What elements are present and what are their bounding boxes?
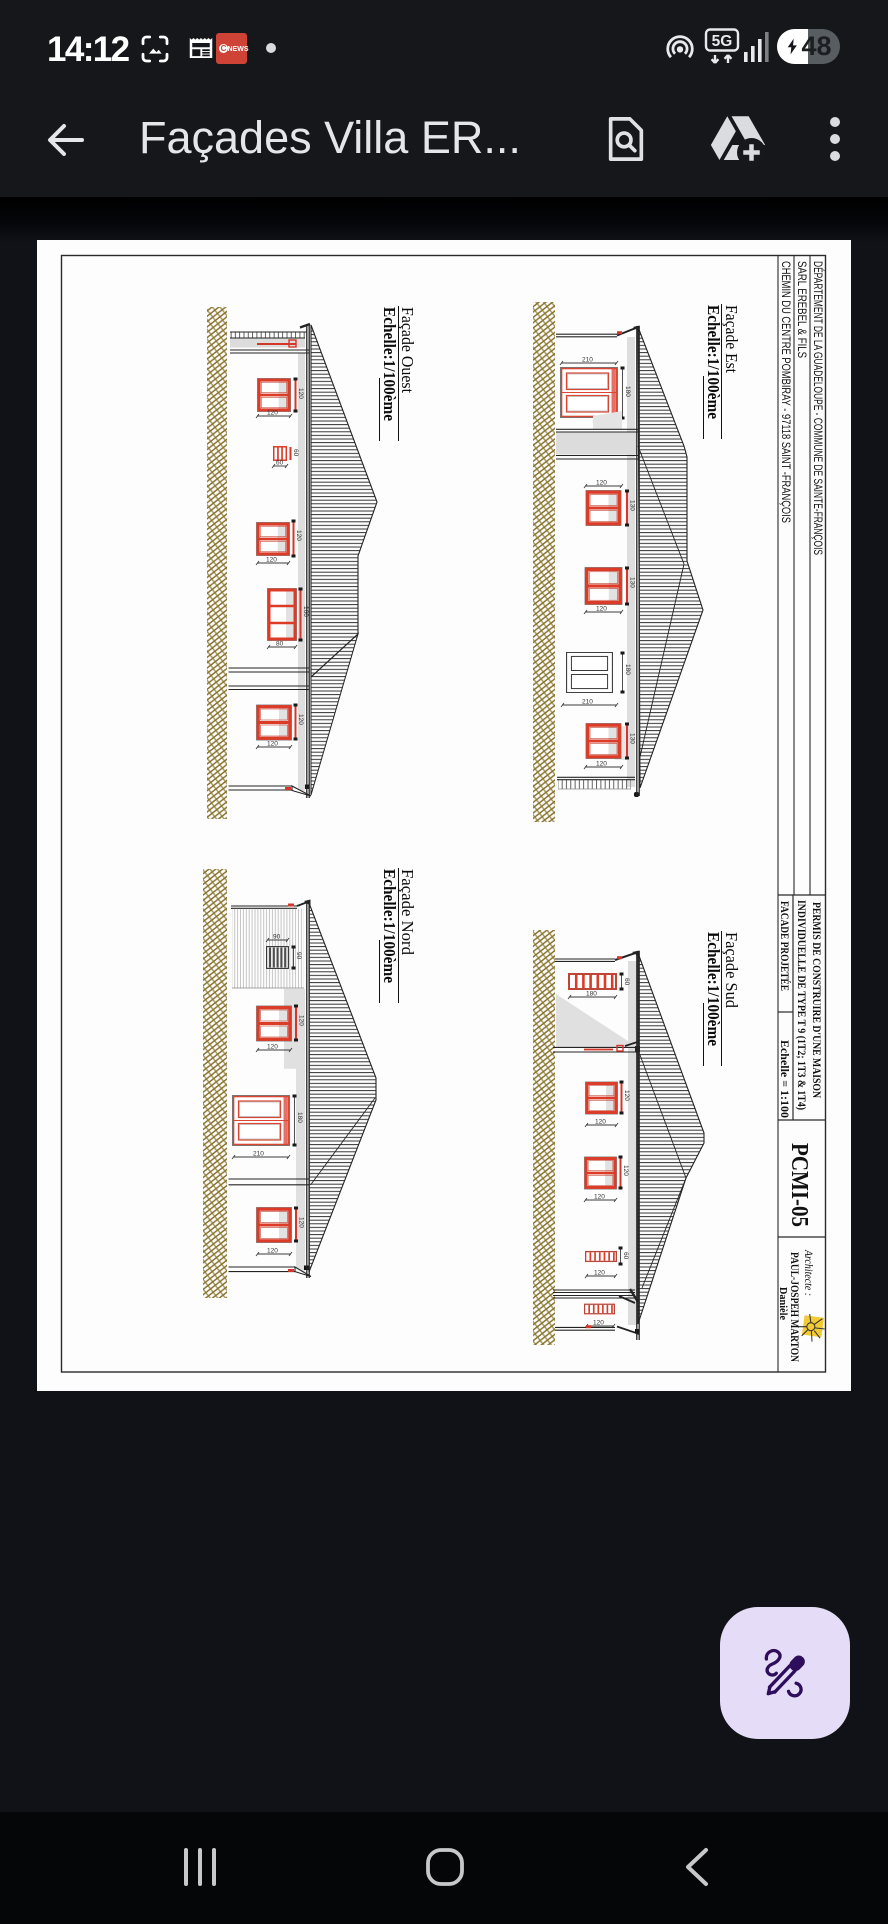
svg-text:120: 120	[267, 1248, 278, 1255]
svg-text:120: 120	[596, 761, 607, 768]
svg-text:60: 60	[622, 1252, 629, 1260]
svg-text:120: 120	[267, 410, 278, 417]
svg-text:120: 120	[267, 1044, 278, 1051]
svg-text:120: 120	[297, 388, 304, 399]
svg-text:Façade Ouest: Façade Ouest	[398, 307, 417, 393]
svg-text:SARL EREBEL & FILS: SARL EREBEL & FILS	[795, 261, 807, 358]
svg-text:INDIVIDUELLE DE TYPE T 9 (1T2;: INDIVIDUELLE DE TYPE T 9 (1T2; 1T3 & 1T4…	[795, 900, 807, 1110]
svg-text:Danièle: Danièle	[777, 1287, 788, 1320]
svg-text:120: 120	[594, 1194, 605, 1201]
svg-text:Echelle:1/100ème: Echelle:1/100ème	[380, 869, 399, 983]
svg-text:Echelle:1/100ème: Echelle:1/100ème	[704, 305, 723, 419]
svg-text:120: 120	[623, 1090, 630, 1101]
svg-text:120: 120	[596, 606, 607, 613]
svg-text:120: 120	[595, 1119, 606, 1126]
svg-text:60: 60	[276, 460, 284, 467]
svg-text:90: 90	[273, 934, 281, 941]
svg-text:180: 180	[586, 991, 597, 998]
svg-text:210: 210	[582, 699, 593, 706]
svg-text:Façade Nord: Façade Nord	[398, 869, 417, 955]
svg-text:60: 60	[623, 978, 630, 986]
svg-text:Echelle:1/100ème: Echelle:1/100ème	[380, 307, 399, 421]
svg-text:60: 60	[292, 449, 299, 457]
svg-text:130: 130	[629, 733, 636, 744]
svg-text:DÉPARTEMENT DE LA GUADELOUPE -: DÉPARTEMENT DE LA GUADELOUPE - COMMUNE D…	[811, 261, 824, 555]
svg-text:130: 130	[629, 500, 636, 511]
svg-text:PERMIS DE CONSTRUIRE D'UNE MAI: PERMIS DE CONSTRUIRE D'UNE MAISON	[810, 902, 824, 1098]
svg-text:120: 120	[298, 1217, 305, 1228]
svg-text:180: 180	[624, 386, 631, 397]
svg-text:180: 180	[624, 664, 631, 675]
svg-text:CHEMIN DU CENTRE POMBIRAY - 97: CHEMIN DU CENTRE POMBIRAY - 97118 SAINT …	[779, 261, 791, 523]
svg-text:80: 80	[276, 641, 284, 648]
svg-text:120: 120	[593, 1320, 604, 1327]
svg-text:90: 90	[295, 952, 302, 960]
svg-text:Echelle:1/100ème: Echelle:1/100ème	[704, 932, 723, 1046]
svg-text:120: 120	[266, 557, 277, 564]
svg-text:Façade Est: Façade Est	[722, 305, 741, 373]
svg-text:120: 120	[267, 741, 278, 748]
svg-text:Echelle = 1:100: Echelle = 1:100	[778, 1040, 792, 1118]
svg-text:Façade Sud: Façade Sud	[722, 932, 741, 1008]
svg-text:120: 120	[295, 530, 302, 541]
svg-text:210: 210	[253, 1151, 264, 1158]
svg-text:FACADE PROJETÉE: FACADE PROJETÉE	[778, 901, 792, 991]
svg-text:120: 120	[594, 1270, 605, 1277]
svg-text:PCMI-05: PCMI-05	[786, 1143, 813, 1227]
svg-text:120: 120	[622, 1165, 629, 1176]
svg-text:PAUL-JOSPEH MARTON: PAUL-JOSPEH MARTON	[788, 1252, 800, 1363]
svg-text:210: 210	[582, 357, 593, 364]
svg-text:180: 180	[296, 1112, 303, 1123]
svg-text:120: 120	[297, 714, 304, 725]
svg-text:120: 120	[596, 480, 607, 487]
svg-text:160: 160	[302, 606, 309, 617]
svg-text:120: 120	[298, 1015, 305, 1026]
svg-text:130: 130	[629, 577, 636, 588]
svg-text:Architecte :: Architecte :	[802, 1249, 814, 1296]
svg-text:5G: 5G	[712, 33, 733, 50]
